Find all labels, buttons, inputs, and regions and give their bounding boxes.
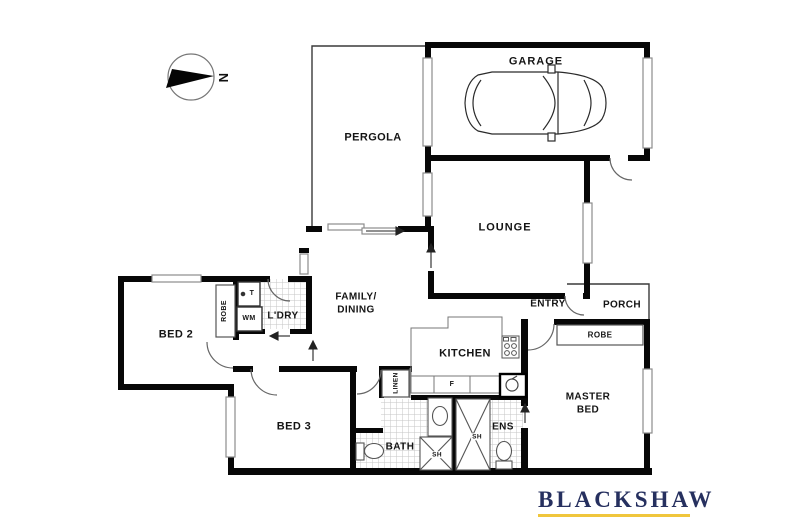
wall <box>428 271 434 299</box>
toilet-icon <box>356 443 384 460</box>
wall <box>228 456 234 475</box>
door-arc <box>251 369 277 395</box>
wall <box>233 366 253 372</box>
room-label-ens: ENS <box>492 421 514 433</box>
room-label-entry: ENTRY <box>530 298 566 310</box>
room-label-garage: GARAGE <box>509 56 563 69</box>
logo-underline <box>538 514 690 517</box>
wall <box>228 384 234 398</box>
sink-icon <box>500 374 526 397</box>
wall <box>425 155 431 174</box>
compass-icon: N <box>166 54 231 100</box>
agency-logo-block: BLACKSHAW <box>538 487 690 517</box>
door-arc <box>565 296 584 315</box>
label-fridge: F <box>450 381 455 389</box>
basin-icon <box>433 407 448 426</box>
room-label-kitchen: KITCHEN <box>439 348 491 361</box>
window <box>423 173 432 216</box>
label-shower-ens: SH <box>471 433 483 440</box>
wall <box>425 42 650 48</box>
arrow-icon <box>270 332 290 340</box>
wall <box>584 262 590 299</box>
wall <box>584 155 590 204</box>
wall <box>118 276 124 390</box>
wall <box>279 366 357 372</box>
wall <box>554 319 650 325</box>
room-label-bed3: BED 3 <box>277 421 311 434</box>
wall <box>306 276 312 332</box>
window <box>583 203 592 263</box>
sliding-door-panel <box>328 224 364 230</box>
room-label-dining: DINING <box>337 304 374 316</box>
room-label-family: FAMILY/ <box>335 291 376 303</box>
room-label-lounge: LOUNGE <box>478 222 531 235</box>
wall <box>644 319 650 370</box>
window <box>423 58 432 146</box>
door-arcs <box>207 158 632 395</box>
toilet-icon <box>496 442 512 470</box>
label-shower-bath: SH <box>431 451 443 458</box>
window <box>226 397 235 457</box>
wall <box>644 147 650 161</box>
window <box>643 369 652 433</box>
window <box>152 275 201 282</box>
wall <box>118 384 234 390</box>
bench-edge <box>411 317 502 376</box>
room-label-pergola: PERGOLA <box>344 132 401 145</box>
door-arc <box>528 324 554 350</box>
label-linen: LINEN <box>392 372 399 394</box>
wall <box>425 155 610 161</box>
door-arc <box>207 342 233 368</box>
car-icon <box>465 65 606 141</box>
agency-logo: BLACKSHAW <box>538 487 690 513</box>
door-arc <box>610 158 632 180</box>
laundry-door <box>300 254 308 274</box>
room-label-porch: PORCH <box>603 299 641 311</box>
room-label-laundry: L'DRY <box>267 310 298 322</box>
tap-dot <box>241 292 244 295</box>
label-washing-machine: WM <box>242 315 255 323</box>
label-robe-master: ROBE <box>588 330 613 339</box>
compass-north-label: N <box>216 73 231 82</box>
wall <box>644 42 650 59</box>
wall <box>425 42 431 59</box>
wall <box>306 226 322 232</box>
wall <box>350 366 356 474</box>
room-label-master: MASTER <box>566 391 611 403</box>
bench-row <box>411 376 501 393</box>
wall <box>644 432 650 475</box>
arrow-icon <box>309 341 317 361</box>
bath-entry-nook <box>356 372 381 428</box>
room-label-bath: BATH <box>386 441 415 453</box>
wall <box>299 248 309 253</box>
stove-icon <box>502 336 519 358</box>
floor-plan: N PERGOLA GARAGE LOUNGE FAMILY/ DINING K… <box>0 0 790 527</box>
label-robe-bed2: ROBE <box>221 300 229 322</box>
label-trough: T <box>250 290 255 298</box>
room-label-master-bed: BED <box>577 404 599 416</box>
wall <box>356 428 383 433</box>
garage-door <box>643 58 652 148</box>
room-label-bed2: BED 2 <box>159 329 193 342</box>
wall <box>521 428 528 475</box>
